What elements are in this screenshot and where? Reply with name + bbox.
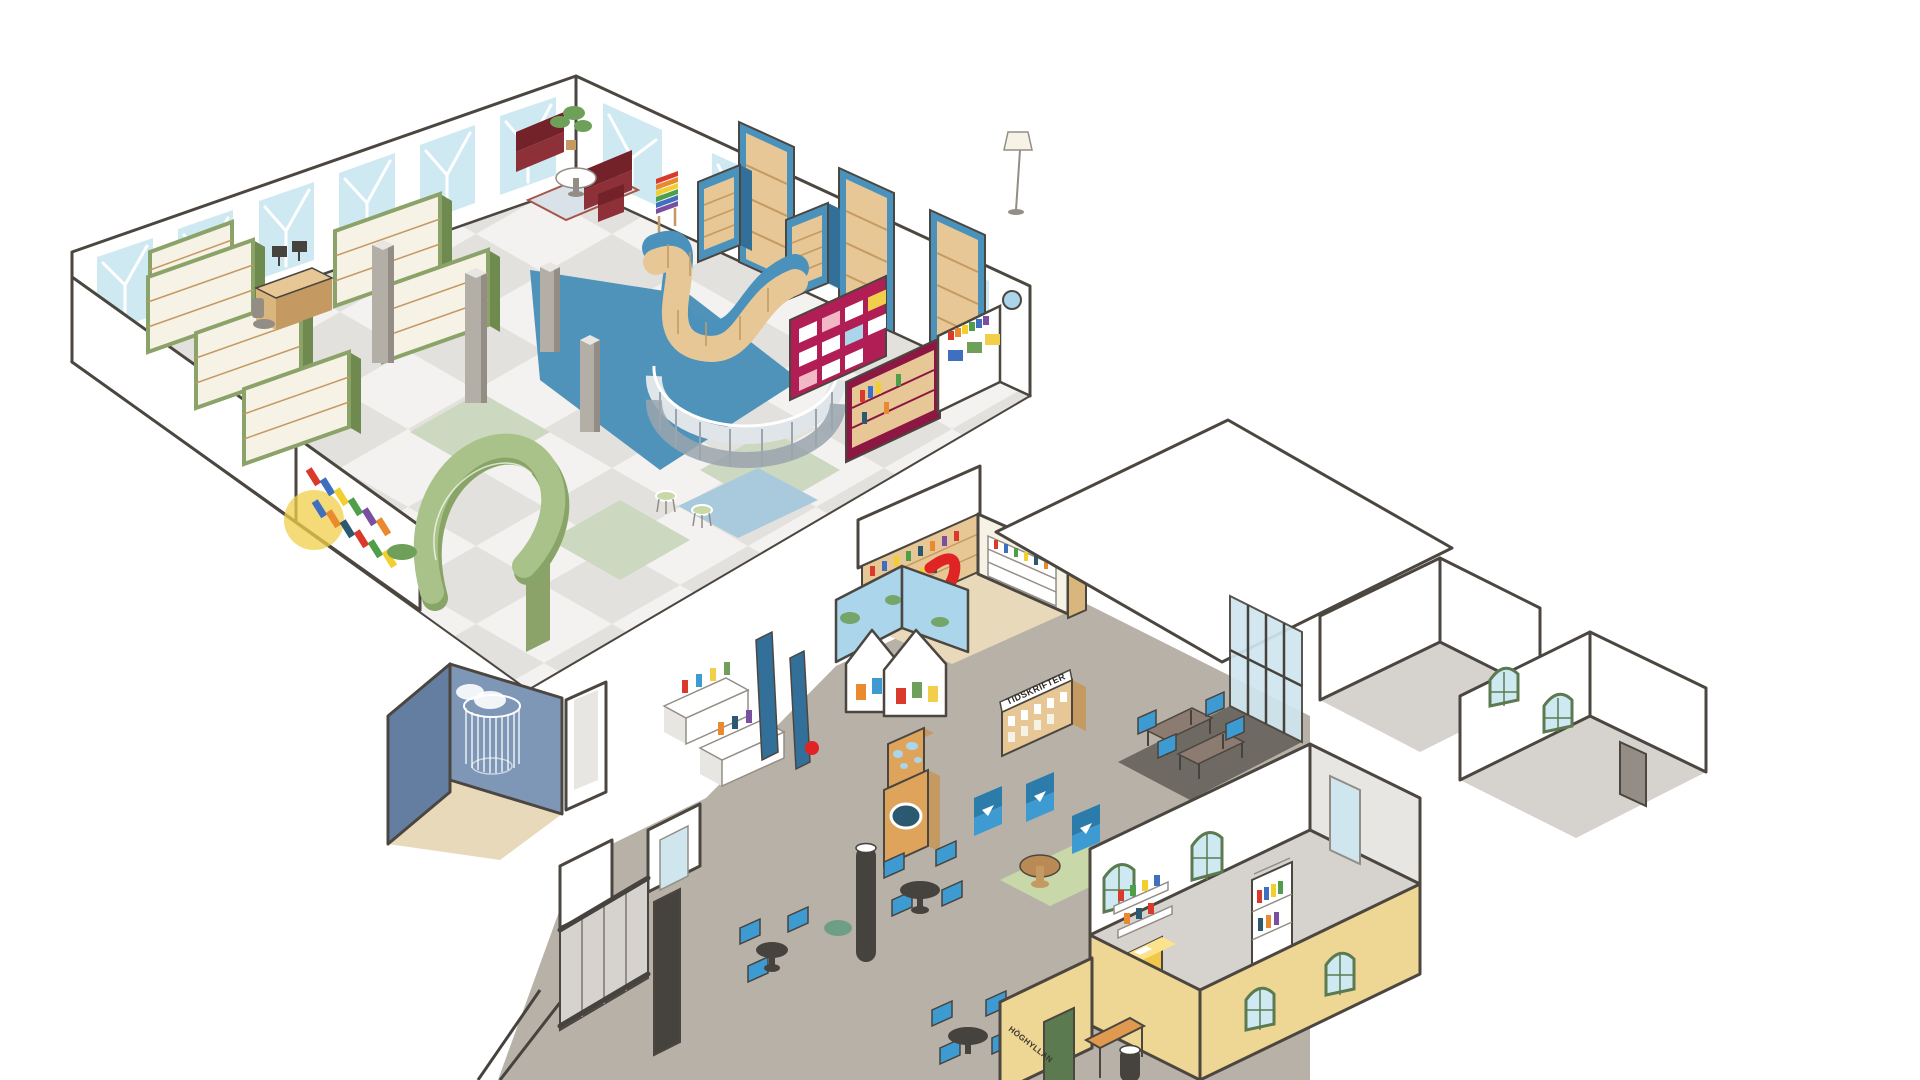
plant-leaves — [574, 120, 592, 132]
grey-pillar — [580, 335, 600, 432]
green-pouf — [387, 544, 417, 560]
bush-mural — [840, 612, 860, 624]
grey-pillar — [540, 262, 560, 352]
table-base — [568, 191, 584, 197]
grey-pillar — [372, 240, 394, 363]
magazine-shelf-side — [1072, 680, 1086, 731]
clock-face — [891, 804, 921, 828]
grey-door — [1620, 742, 1646, 806]
floorplan-svg: TIDSKRIFTER — [0, 0, 1920, 1080]
kiosk-stand — [654, 889, 680, 1055]
picture-frame — [948, 350, 963, 361]
picture-frame — [967, 342, 982, 353]
plant-pot — [566, 140, 576, 150]
story-room — [388, 664, 606, 860]
red-ball — [805, 741, 819, 755]
bush-mural — [885, 595, 901, 605]
grey-green-pouf — [824, 920, 852, 936]
table-stem — [1036, 866, 1044, 882]
round-pillar — [856, 844, 876, 963]
arched-window — [1326, 953, 1354, 995]
cloud-mural — [474, 691, 506, 709]
monitor — [272, 246, 287, 257]
table-stem — [573, 178, 579, 192]
office-chair-back — [252, 298, 264, 318]
library-floorplan-illustration: TIDSKRIFTER — [0, 0, 1920, 1080]
floor-lamp — [1004, 132, 1032, 215]
glass-door-panel — [1330, 776, 1360, 864]
green-door — [1044, 1008, 1074, 1080]
arched-window — [1490, 668, 1518, 706]
arched-window — [1246, 988, 1274, 1030]
picture-frame — [985, 334, 1000, 345]
wall-clock — [1003, 291, 1021, 309]
round-pillar — [1120, 1046, 1140, 1080]
arched-window — [1544, 694, 1572, 732]
bush-mural — [931, 617, 949, 627]
grey-pillar — [465, 268, 487, 403]
office-chair — [253, 319, 275, 329]
plant-leaves — [563, 106, 585, 120]
monitor — [292, 241, 307, 252]
door-frame — [566, 682, 606, 810]
arched-window — [1192, 833, 1222, 880]
